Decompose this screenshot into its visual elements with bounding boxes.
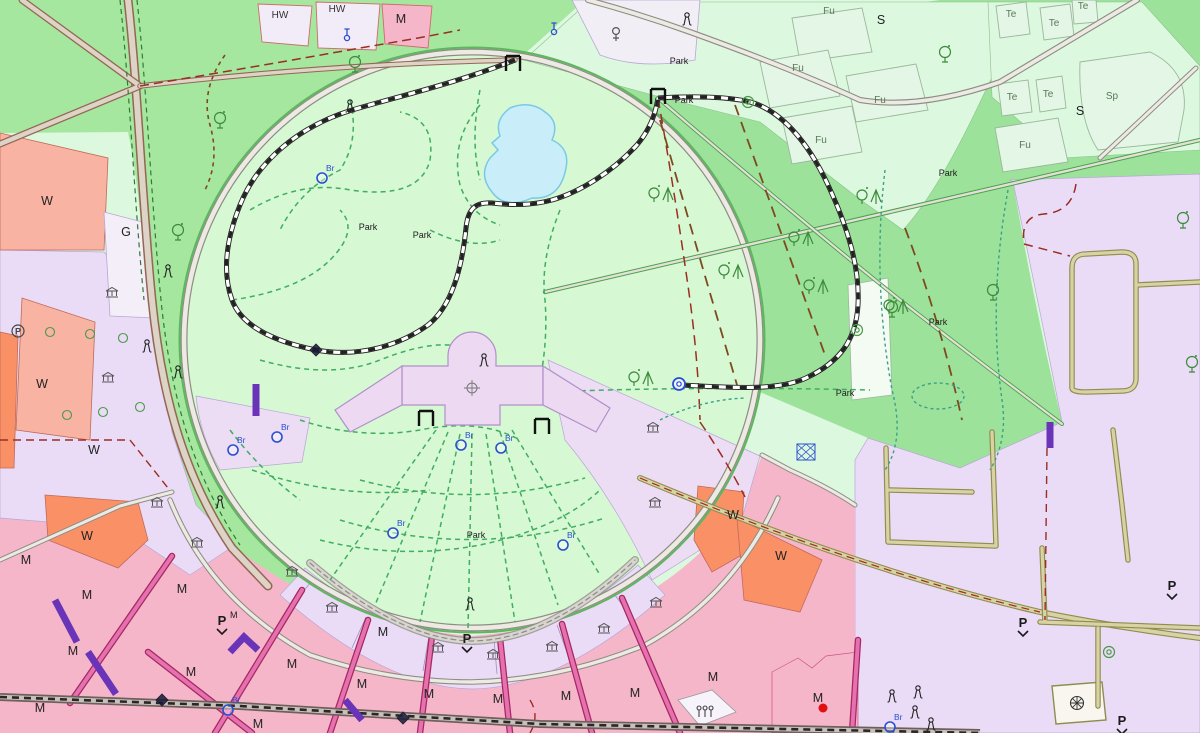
svg-text:P: P bbox=[218, 613, 227, 628]
svg-text:P: P bbox=[1118, 713, 1127, 728]
fountain-icon bbox=[558, 540, 568, 550]
map-label: Park bbox=[675, 95, 694, 105]
map-label: Park bbox=[929, 317, 948, 327]
map-label: Park bbox=[670, 56, 689, 66]
map-label: Fu bbox=[1019, 140, 1031, 151]
svg-text:P: P bbox=[1019, 615, 1028, 630]
map-label: G bbox=[121, 225, 131, 239]
fountain-label: Br bbox=[237, 435, 246, 445]
map-label: M bbox=[813, 691, 823, 705]
map-label: M bbox=[357, 677, 367, 691]
map-label: S bbox=[877, 13, 885, 27]
map-label: M bbox=[378, 625, 388, 639]
fountain-label: Br bbox=[232, 695, 241, 705]
map-label: M bbox=[287, 657, 297, 671]
map-label: M bbox=[68, 644, 78, 658]
map-label: M bbox=[630, 686, 640, 700]
svg-text:M: M bbox=[230, 610, 238, 620]
fountain-label: Br bbox=[326, 163, 335, 173]
map-canvas[interactable]: P bbox=[0, 0, 1200, 733]
map-label: M bbox=[186, 665, 196, 679]
fountain-icon bbox=[496, 443, 506, 453]
fountain-label: Br bbox=[397, 518, 406, 528]
map-label: Park bbox=[359, 222, 378, 232]
map-label: Park bbox=[413, 230, 432, 240]
parcel-m-pink-top bbox=[382, 4, 432, 48]
svg-text:P: P bbox=[1168, 578, 1177, 593]
fountain-icon bbox=[317, 173, 327, 183]
map-label: M bbox=[35, 701, 45, 715]
map-label: S bbox=[1076, 104, 1084, 118]
map-label: Te bbox=[1007, 92, 1018, 103]
map-label: W bbox=[727, 508, 739, 522]
map-label: Park bbox=[467, 530, 486, 540]
fountain-icon bbox=[885, 722, 895, 732]
map-label: M bbox=[561, 689, 571, 703]
map-label: Te bbox=[1006, 9, 1017, 20]
map-label: Fu bbox=[823, 6, 835, 17]
fountain-label: Br bbox=[567, 530, 576, 540]
sunburst-icon bbox=[1071, 697, 1084, 710]
map-label: W bbox=[41, 194, 53, 208]
parcel-white-spiral bbox=[848, 278, 892, 400]
map-label: Te bbox=[1043, 89, 1054, 100]
fountain-label: Br bbox=[505, 433, 514, 443]
map-label: Park bbox=[939, 168, 958, 178]
fountain-icon bbox=[388, 528, 398, 538]
parcel-w-salmon-2 bbox=[16, 298, 95, 440]
map-label: M bbox=[424, 687, 434, 701]
map-label: M bbox=[708, 670, 718, 684]
fountain-icon bbox=[223, 705, 233, 715]
map-label: M bbox=[21, 553, 31, 567]
map-label: M bbox=[82, 588, 92, 602]
map-label: Te bbox=[1078, 1, 1089, 12]
fountain-label: Br bbox=[281, 422, 290, 432]
map-label: M bbox=[253, 717, 263, 731]
station-icon bbox=[673, 378, 685, 390]
fountain-icon bbox=[228, 445, 238, 455]
map-label: Sp bbox=[1106, 91, 1119, 102]
map-label: W bbox=[88, 443, 100, 457]
map-label: W bbox=[81, 529, 93, 543]
map-label: HW bbox=[329, 4, 346, 15]
fountain-icon bbox=[272, 432, 282, 442]
parcel-hw-2 bbox=[316, 2, 380, 50]
map-label: Fu bbox=[792, 63, 804, 74]
fountain-label: Br bbox=[465, 430, 474, 440]
map-label: Fu bbox=[815, 135, 827, 146]
fountain-label: Br bbox=[894, 712, 903, 722]
svg-text:P: P bbox=[463, 631, 472, 646]
map-label: Te bbox=[1049, 18, 1060, 29]
map-label: M bbox=[493, 692, 503, 706]
map-label: M bbox=[396, 12, 406, 26]
map-label: M bbox=[177, 582, 187, 596]
map-label: W bbox=[36, 377, 48, 391]
fountain-icon bbox=[456, 440, 466, 450]
map-label: Park bbox=[836, 388, 855, 398]
map-label: HW bbox=[272, 10, 289, 21]
map-label: Fu bbox=[874, 95, 886, 106]
map-label: W bbox=[775, 549, 787, 563]
map-viewport[interactable]: { "map": { "kind": "cadastral-zoning-map… bbox=[0, 0, 1200, 733]
